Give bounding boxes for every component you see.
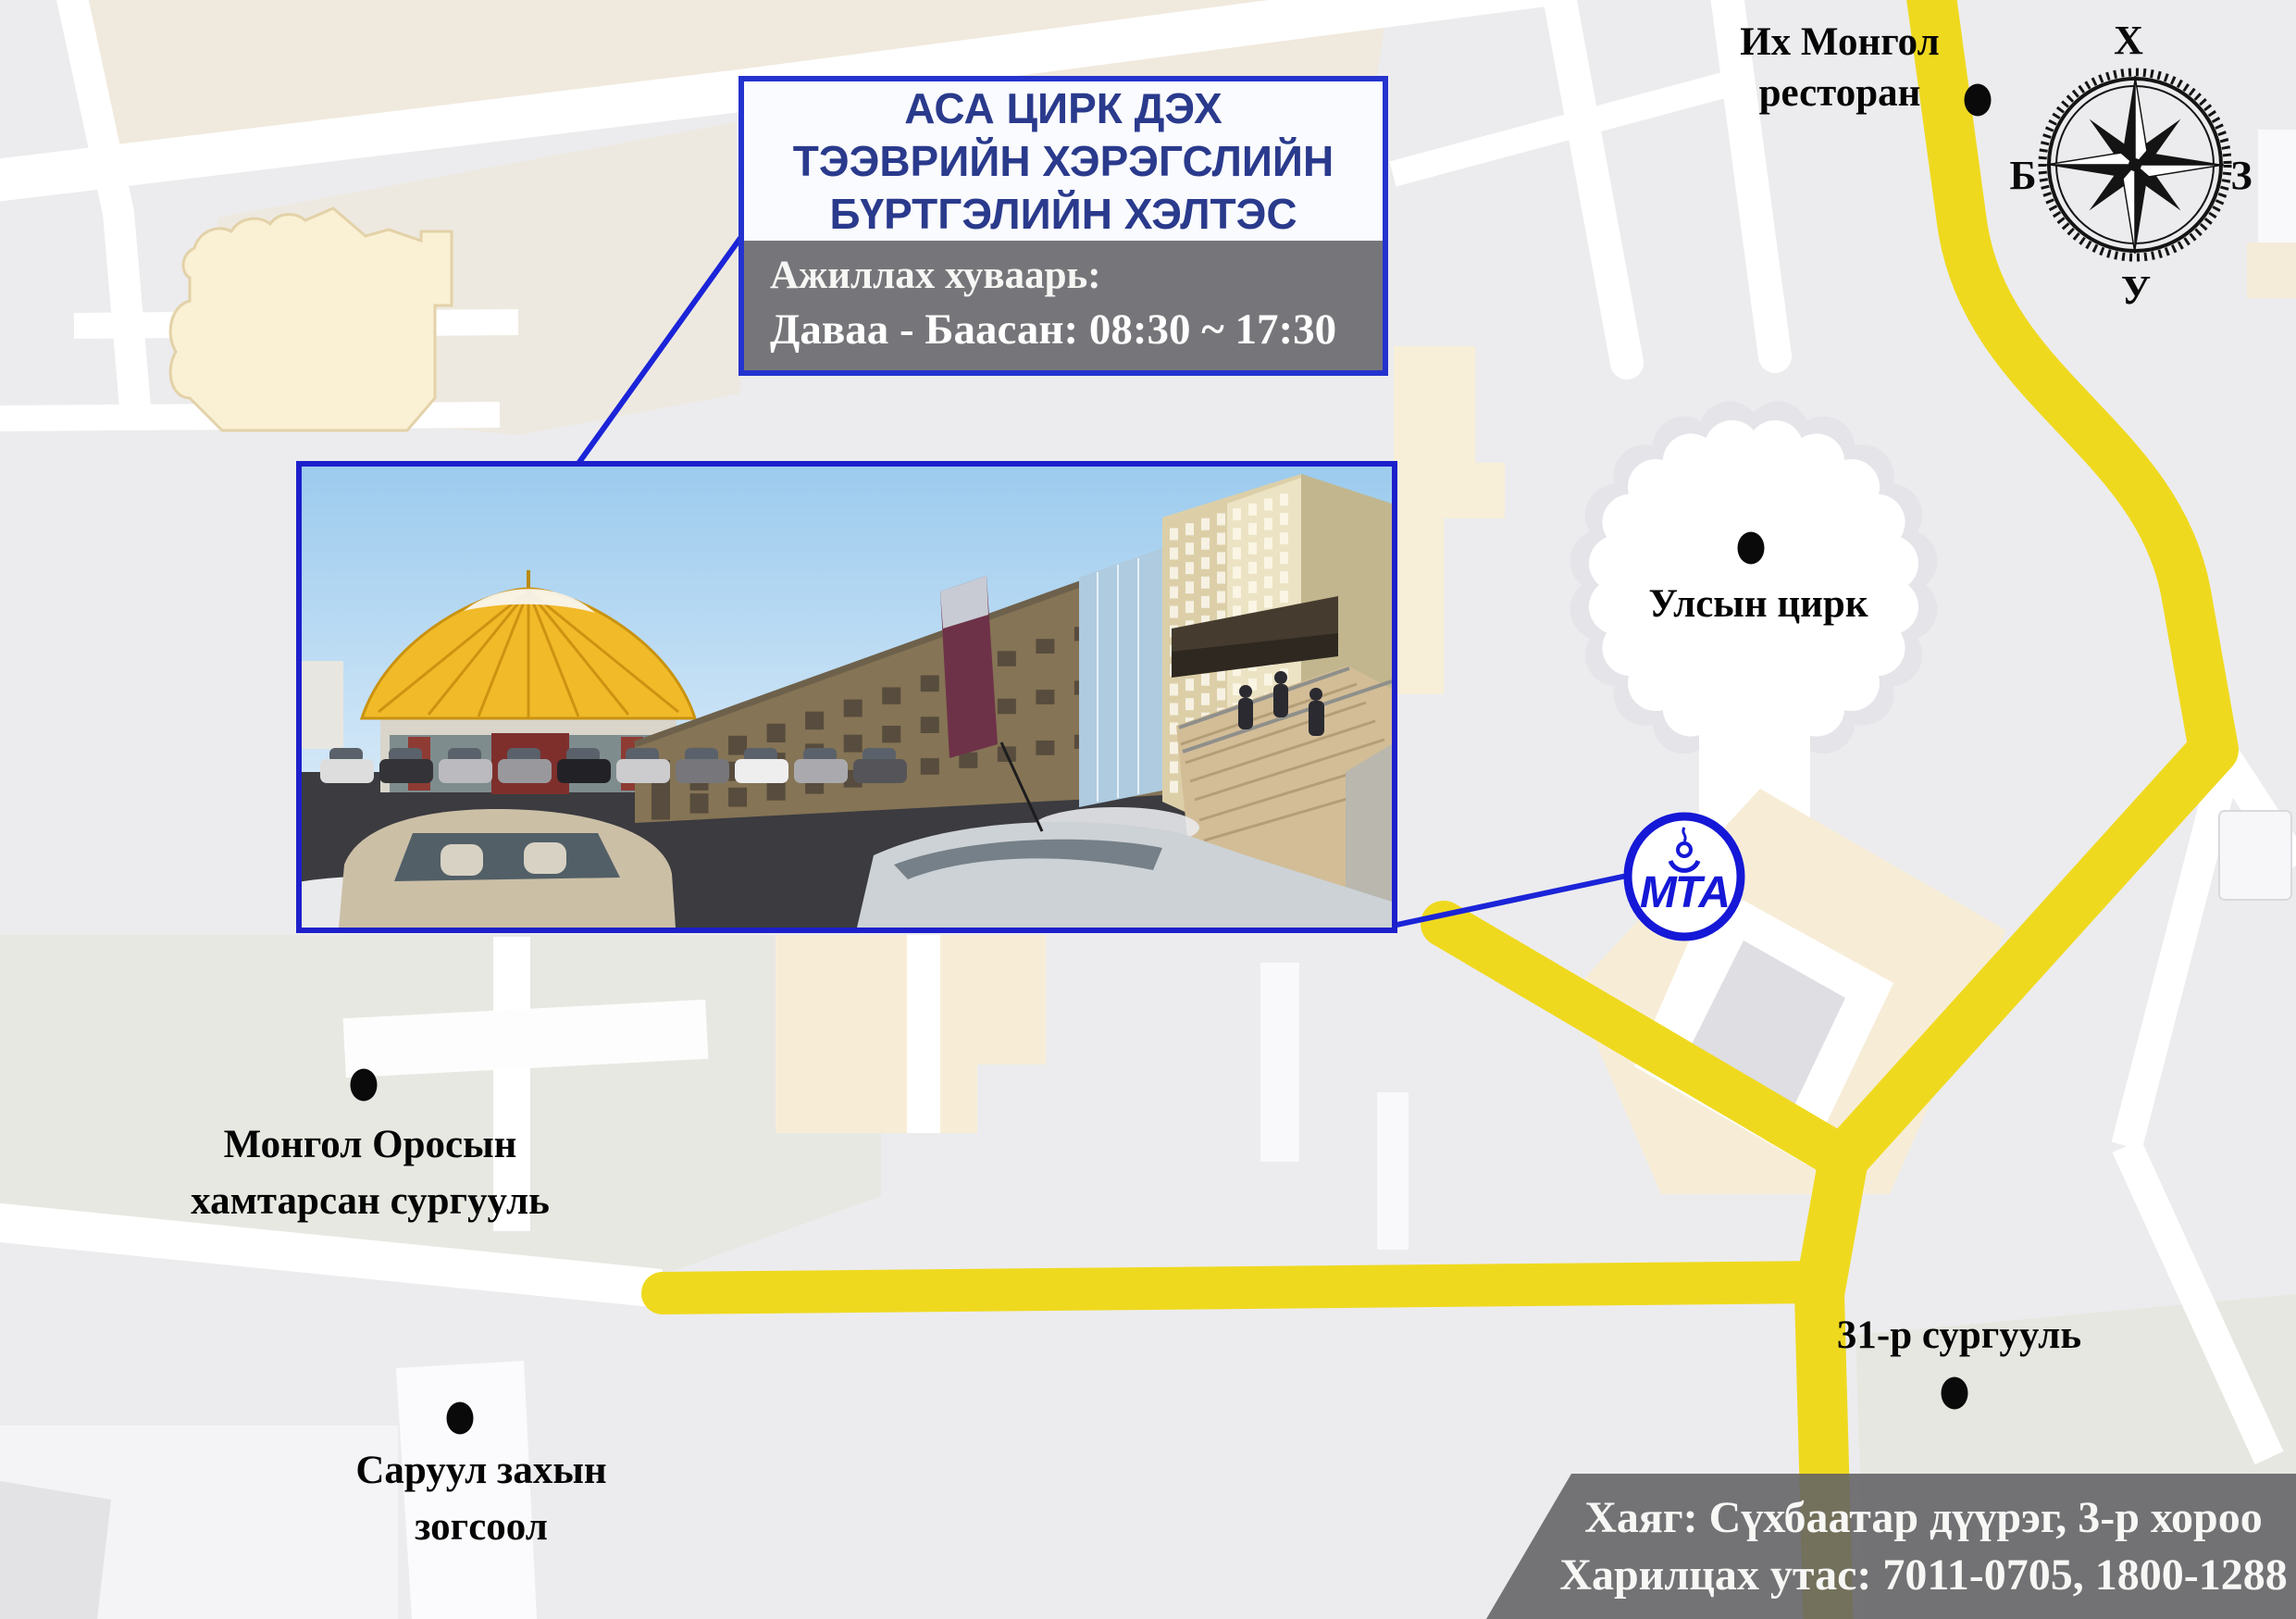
label-parking-line1: Саруул захын	[227, 1442, 736, 1499]
working-hours-value: Даваа - Баасан: 08:30 ~ 17:30	[770, 302, 1383, 357]
label-school-ru-line2: хамтарсан сургууль	[102, 1173, 639, 1229]
label-school31-line1: 31-р сургууль	[1797, 1309, 2121, 1363]
map-poster: Их Монгол ресторан Улсын цирк Монгол Оро…	[0, 0, 2296, 1619]
phone-line: Харилцах утас: 7011-0705, 1800-1288	[1551, 1547, 2296, 1604]
office-title-line2: ТЭЭВРИЙН ХЭРЭГСЛИЙН	[744, 135, 1383, 188]
mta-logo-text: МТА	[1640, 868, 1729, 917]
title-callout-box: АСА ЦИРК ДЭХ ТЭЭВРИЙН ХЭРЭГСЛИЙН БҮРТГЭЛ…	[738, 76, 1388, 376]
label-parking: Саруул захын зогсоол	[227, 1442, 736, 1555]
marker-parking	[447, 1402, 474, 1435]
office-photo	[296, 461, 1397, 933]
office-title: АСА ЦИРК ДЭХ ТЭЭВРИЙН ХЭРЭГСЛИЙН БҮРТГЭЛ…	[744, 81, 1383, 241]
label-circus: Улсын цирк	[1601, 578, 1916, 631]
label-restaurant-line2: ресторан	[1692, 68, 1988, 118]
marker-school-ru	[351, 1069, 378, 1102]
label-school31: 31-р сургууль	[1797, 1309, 2121, 1363]
office-title-line1: АСА ЦИРК ДЭХ	[744, 82, 1383, 135]
label-restaurant: Их Монгол ресторан	[1692, 17, 1988, 118]
callout-line-logo	[1393, 876, 1627, 926]
compass-label-west: Б	[2009, 153, 2036, 198]
working-hours-panel: Ажиллах хуваарь: Даваа - Баасан: 08:30 ~…	[744, 241, 1383, 370]
office-photo-image	[302, 467, 1392, 928]
label-circus-line1: Улсын цирк	[1601, 578, 1916, 631]
address-panel: Хаяг: Сүхбаатар дүүрэг, 3-р хороо Харилц…	[1486, 1474, 2296, 1619]
compass-label-north: Х	[2114, 18, 2143, 63]
address-line: Хаяг: Сүхбаатар дүүрэг, 3-р хороо	[1551, 1489, 2296, 1547]
mta-logo-icon: МТА	[1621, 811, 1747, 942]
label-school-ru: Монгол Оросын хамтарсан сургууль	[102, 1116, 639, 1229]
marker-circus	[1738, 532, 1765, 565]
compass-label-east: З	[2230, 153, 2252, 198]
label-parking-line2: зогсоол	[227, 1499, 736, 1555]
compass-rose: Х Б З У	[2006, 6, 2265, 313]
marker-school31	[1942, 1377, 1968, 1410]
working-hours-label: Ажиллах хуваарь:	[770, 250, 1383, 302]
office-title-line3: БҮРТГЭЛИЙН ХЭЛТЭС	[744, 188, 1383, 241]
compass-label-south: У	[2121, 268, 2151, 313]
compass-rose-icon	[2042, 72, 2228, 257]
label-restaurant-line1: Их Монгол	[1692, 17, 1988, 68]
label-school-ru-line1: Монгол Оросын	[102, 1116, 639, 1173]
callout-line-titlebox	[577, 234, 743, 465]
